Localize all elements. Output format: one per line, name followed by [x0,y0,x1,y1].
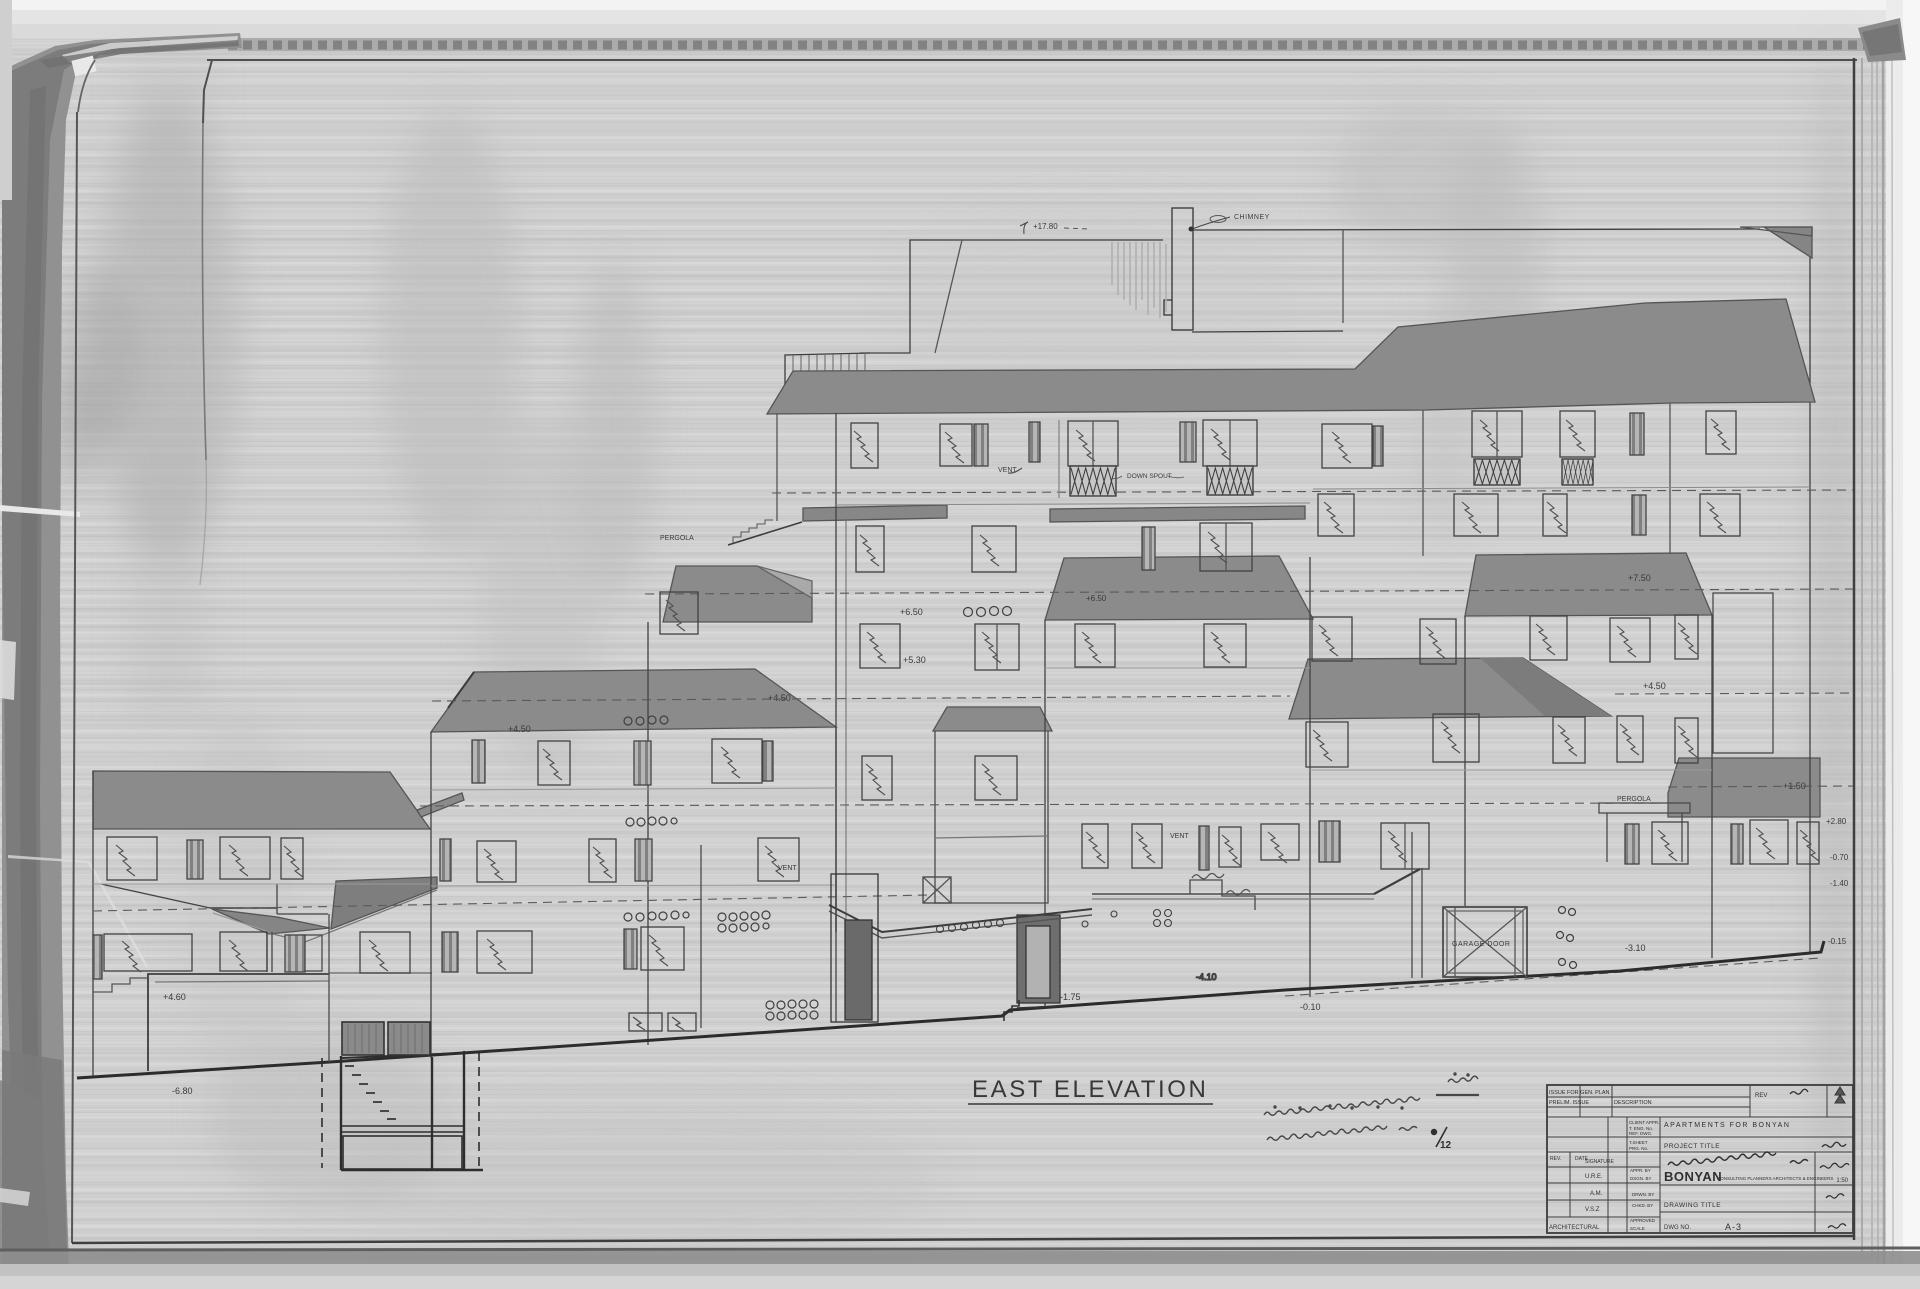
svg-text:1:50: 1:50 [1836,1178,1848,1184]
svg-text:-1.75: -1.75 [1060,992,1081,1002]
svg-text:VENT: VENT [1170,833,1189,840]
svg-text:+6.50: +6.50 [900,607,923,617]
svg-text:APPROVED: APPROVED [1630,1218,1656,1223]
svg-text:REV.: REV. [1550,1156,1561,1162]
svg-text:-0.70: -0.70 [1830,853,1849,862]
svg-text:SCALE: SCALE [1630,1226,1645,1231]
svg-text:A.M.: A.M. [1590,1191,1603,1197]
svg-text:CHKD. BY: CHKD. BY [1632,1203,1653,1208]
svg-text:+4.50: +4.50 [1643,681,1666,691]
svg-text:+2.80: +2.80 [1826,817,1847,826]
svg-text:GARAGE DOOR: GARAGE DOOR [1452,941,1510,948]
svg-text:V.S.Z: V.S.Z [1585,1207,1600,1213]
svg-text:+6.50: +6.50 [1086,594,1107,603]
svg-text:DRWN. BY: DRWN. BY [1632,1192,1654,1197]
svg-text:ARCHITECTURAL: ARCHITECTURAL [1549,1225,1600,1231]
svg-text:+7.50: +7.50 [1628,573,1651,583]
svg-text:PRG. No.: PRG. No. [1629,1146,1648,1151]
svg-text:-3.10: -3.10 [1625,943,1646,953]
svg-text:DOWN SPOUT: DOWN SPOUT [1127,473,1172,480]
svg-text:-6.80: -6.80 [172,1086,193,1096]
svg-text:PRELIM. ISSUE: PRELIM. ISSUE [1549,1100,1589,1106]
svg-text:BONYAN: BONYAN [1664,1169,1722,1184]
svg-text:-0.10: -0.10 [1300,1002,1321,1012]
svg-text:DSGN. BY: DSGN. BY [1630,1176,1652,1181]
svg-text:A-3: A-3 [1725,1222,1742,1232]
svg-text:DESCRIPTION: DESCRIPTION [1614,1100,1652,1106]
svg-text:+17.80: +17.80 [1033,222,1058,231]
svg-text:PERGOLA: PERGOLA [1617,796,1651,803]
svg-text:+4.50: +4.50 [768,693,791,703]
svg-text:APPR. BY: APPR. BY [1630,1168,1651,1173]
svg-text:T.SHEET: T.SHEET [1629,1140,1648,1145]
svg-text:APARTMENTS FOR BONYAN: APARTMENTS FOR BONYAN [1664,1122,1790,1129]
svg-text:VENT: VENT [778,865,797,872]
svg-text:-0.15: -0.15 [1828,937,1847,946]
svg-text:-1.40: -1.40 [1830,879,1849,888]
svg-text:REF. DWG.: REF. DWG. [1629,1131,1652,1136]
svg-text:PERGOLA: PERGOLA [660,535,694,542]
svg-text:+1.50: +1.50 [1783,781,1806,791]
svg-text:+5.30: +5.30 [903,655,926,665]
svg-text:12: 12 [1440,1140,1452,1151]
svg-text:CONSULTING PLANNERS ARCHITEC: CONSULTING PLANNERS ARCHITECTS & ENGINEE… [1717,1176,1833,1181]
svg-text:DWG NO.: DWG NO. [1664,1225,1691,1231]
svg-text:CLIENT APPR.: CLIENT APPR. [1629,1120,1659,1125]
svg-text:VENT: VENT [998,467,1017,474]
svg-text:PROJECT TITLE: PROJECT TITLE [1664,1143,1720,1150]
svg-text:ISSUE FOR GEN. PLAN: ISSUE FOR GEN. PLAN [1549,1090,1610,1096]
svg-text:REV: REV [1755,1093,1767,1099]
svg-text:U.R.E.: U.R.E. [1585,1174,1603,1180]
svg-text:EAST ELEVATION: EAST ELEVATION [972,1076,1208,1103]
svg-text:DRAWING TITLE: DRAWING TITLE [1664,1202,1721,1209]
svg-text:-4.10: -4.10 [1196,972,1217,982]
svg-text:SIGNATURE: SIGNATURE [1585,1159,1614,1165]
svg-text:CHIMNEY: CHIMNEY [1234,214,1270,221]
svg-text:+4.50: +4.50 [508,724,531,734]
svg-text:+4.60: +4.60 [163,992,186,1002]
